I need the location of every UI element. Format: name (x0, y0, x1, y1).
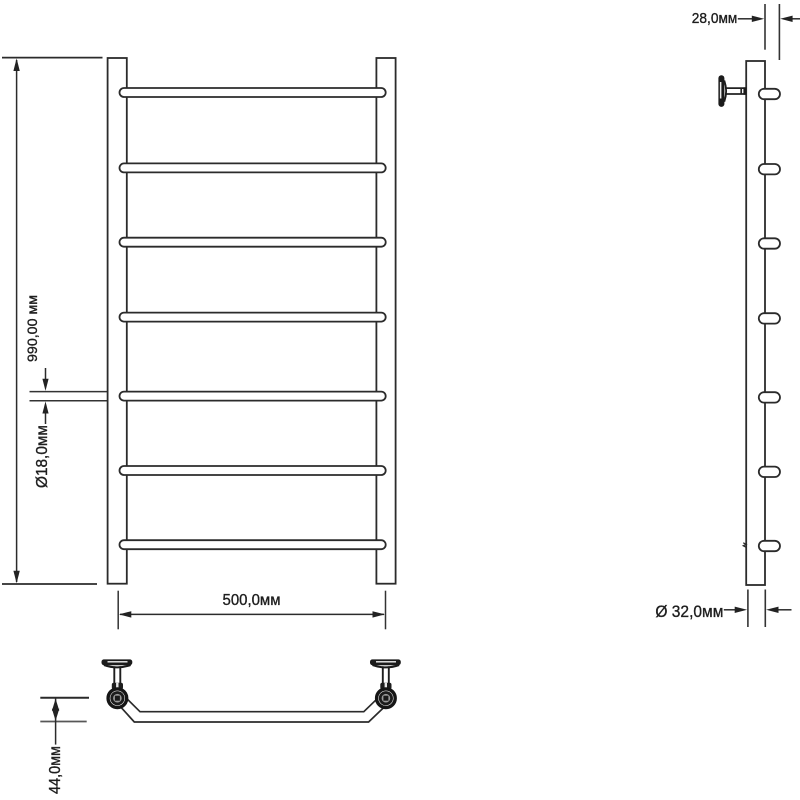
svg-text:500,0мм: 500,0мм (223, 592, 281, 609)
svg-text:28,0мм: 28,0мм (692, 10, 738, 27)
svg-text:44,0мм: 44,0мм (47, 746, 64, 794)
svg-text:990,00 мм: 990,00 мм (24, 295, 40, 362)
svg-text:Ø 32,0мм: Ø 32,0мм (655, 602, 723, 621)
svg-text:Ø18,0мм: Ø18,0мм (34, 425, 51, 488)
